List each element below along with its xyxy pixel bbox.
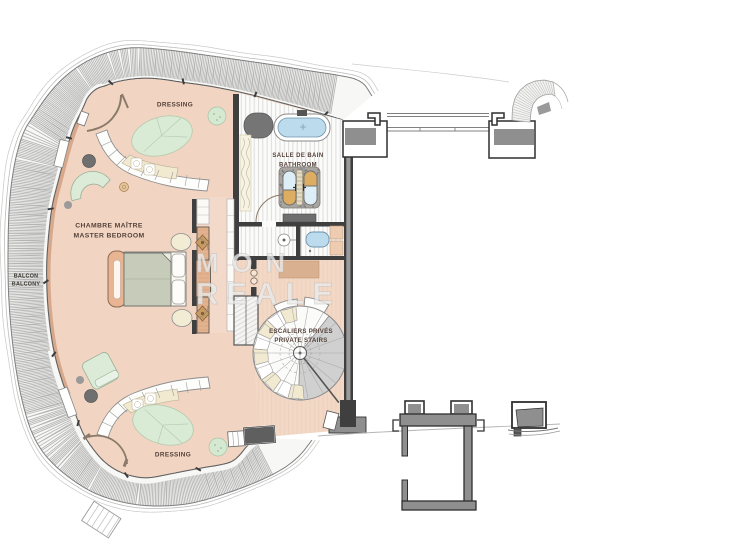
svg-text:SALLE DE BAIN: SALLE DE BAIN [272, 153, 323, 159]
svg-text:CHAMBRE MAÎTRE: CHAMBRE MAÎTRE [75, 221, 143, 230]
svg-text:DRESSING: DRESSING [155, 452, 191, 459]
svg-text:DRESSING: DRESSING [157, 102, 193, 109]
svg-text:BALCON: BALCON [14, 274, 39, 280]
svg-text:PRIVATE STAIRS: PRIVATE STAIRS [274, 337, 327, 344]
svg-text:MASTER BEDROOM: MASTER BEDROOM [74, 233, 145, 240]
svg-text:BATHROOM: BATHROOM [279, 163, 317, 169]
svg-text:MON: MON [196, 248, 298, 278]
svg-text:REALE: REALE [196, 276, 341, 311]
svg-text:BALCONY: BALCONY [12, 282, 41, 288]
svg-text:ESCALIERS PRIVÉS: ESCALIERS PRIVÉS [269, 327, 333, 335]
